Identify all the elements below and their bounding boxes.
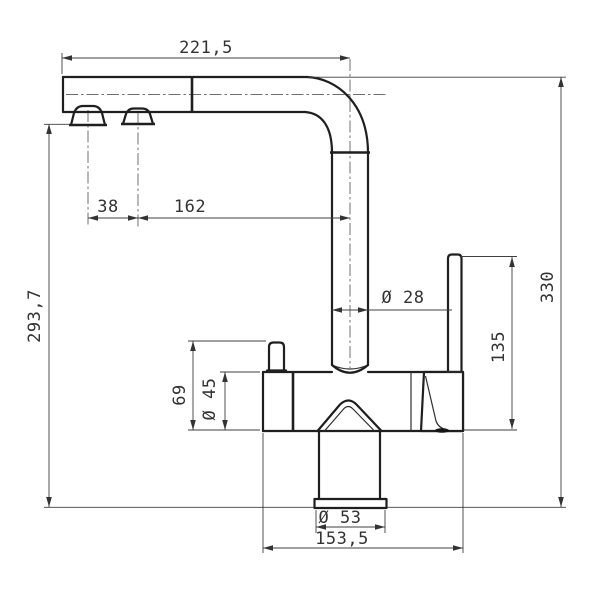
base-flange [315, 499, 387, 508]
arrowhead [222, 372, 228, 382]
dim-label-outlet-spacing: 38 [97, 197, 118, 217]
drawing-sheet: 221,5 38 162 293,7 330 Ø 28 135 [0, 0, 600, 600]
dim-label-outlet-to-riser: 162 [174, 197, 206, 217]
dim-label-lever-height: 135 [489, 331, 509, 363]
lever-base-block [421, 372, 463, 431]
arrowhead [128, 215, 138, 221]
spout-arm [63, 77, 370, 153]
dim-label-spout-reach: 221,5 [179, 38, 233, 58]
arrowhead [358, 307, 368, 313]
arrowhead [138, 215, 148, 221]
arrowhead [222, 420, 228, 430]
arrowhead [453, 545, 463, 551]
arrowhead [46, 497, 52, 507]
arrowhead [263, 545, 273, 551]
arrowhead [190, 420, 196, 430]
arrowhead [190, 341, 196, 351]
dimension-outlet-chain: 38 162 [88, 197, 350, 221]
dimension-lever-height: 135 [461, 257, 517, 431]
dim-label-outlet-height: 293,7 [25, 289, 45, 343]
dim-label-overall-height: 330 [538, 271, 558, 303]
spout-inner-bend [305, 112, 332, 153]
arrowhead [340, 215, 350, 221]
arrowhead [46, 124, 52, 134]
dimension-body-diameter: Ø 45 [200, 372, 260, 430]
dimension-overall-height: 330 [308, 77, 566, 507]
dimension-outlet-height: 293,7 [25, 124, 70, 507]
arrowhead [340, 55, 350, 61]
aerator-outlets [69, 106, 155, 125]
filter-knob-outline [269, 343, 284, 373]
dim-label-base-diameter: Ø 53 [319, 508, 362, 528]
faucet-technical-drawing: 221,5 38 162 293,7 330 Ø 28 135 [0, 0, 600, 600]
mounting-cone [318, 401, 382, 432]
arrowhead [332, 307, 342, 313]
arrowhead [509, 257, 515, 267]
lever-handle [421, 255, 463, 433]
filter-valve-knob [267, 343, 286, 373]
dim-label-body-diameter: Ø 45 [200, 378, 220, 421]
arrowhead [62, 55, 72, 61]
arrowhead [558, 497, 564, 507]
dim-label-riser-diameter: Ø 28 [382, 288, 425, 308]
arrowhead [509, 419, 515, 429]
lever-bar [448, 255, 462, 373]
mounting-base [315, 401, 387, 509]
dimension-base-span: 153,5 [263, 433, 463, 553]
lever-base-cap [435, 428, 449, 433]
arrowhead [558, 77, 564, 87]
dimension-spout-reach: 221,5 [62, 38, 350, 74]
arrowhead [375, 524, 385, 530]
dim-label-base-span: 153,5 [315, 529, 369, 549]
dim-label-side-valve-height: 69 [170, 384, 190, 405]
